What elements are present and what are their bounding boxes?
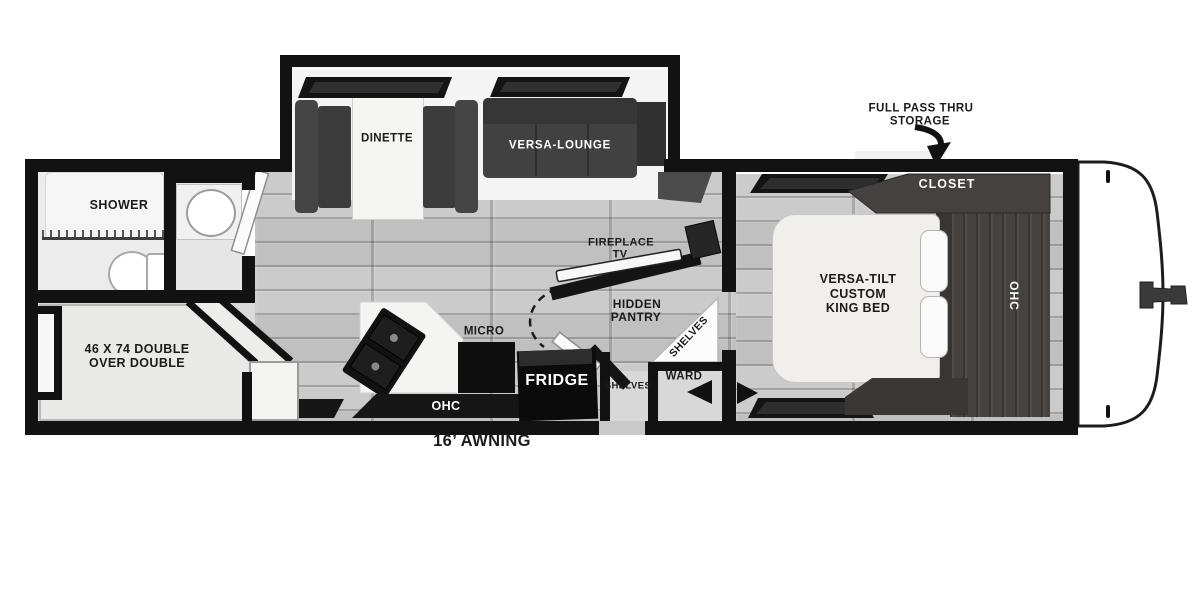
wall-bedroom-left-upper [722,172,736,292]
entry-door-threshold [597,421,647,435]
tv-panel [685,220,721,259]
wall-wardrobe-left [648,362,658,421]
king-bed-label-line3: KING BED [826,302,890,315]
marker-light [1106,170,1110,183]
hidden-pantry-label-line2: PANTRY [611,311,661,323]
slideout-window-glass [309,82,444,93]
wall-front [1063,159,1078,435]
fridge-top-face [519,349,592,367]
bunk-label-line2: OVER DOUBLE [89,357,185,370]
wall-bathroom-right-upper [242,159,255,190]
wall-alcove-top [176,172,242,183]
wall-shower-right [164,159,176,303]
wardrobe-rod-icon [687,380,712,404]
microwave-label: MICRO [464,326,504,338]
wall-bottom [25,421,1078,435]
bunk-label-line1: 46 X 74 DOUBLE [85,343,190,356]
versa-lounge-label: VERSA-LOUNGE [509,140,611,152]
closet-label: CLOSET [919,178,976,191]
dinette-label: DINETTE [361,133,413,145]
wall-top-front [664,159,1078,172]
slideout-wall-left [280,55,292,172]
fireplace-label-line1: FIREPLACE [588,238,654,249]
king-bed-label-line1: VERSA-TILT [820,273,897,286]
entry-step-platform [250,362,298,420]
pantry-overhead-cabinet [658,172,712,203]
rv-floorplan: SHOWER DINETTE VERSA-LOUNGE FIREPLACE TV… [0,0,1200,600]
shower-label: SHOWER [90,199,149,212]
fireplace-label-line2: TV [613,250,628,261]
slideout-wall-right [668,55,680,172]
fridge-label: FRIDGE [525,373,588,389]
bedroom-ohc-label: OHC [1008,281,1020,311]
pass-thru-storage-label-line2: STORAGE [890,116,950,128]
entry-shelves-label: SHELVES [605,381,651,391]
bunk-window-glass [36,314,54,392]
wall-bedroom-left-lower [722,350,736,421]
king-bed-label-line2: CUSTOM [830,288,886,301]
bedroom-corner-wedge [737,382,758,404]
awning-label: 16’ AWNING [433,433,531,450]
wall-post [242,372,252,421]
wardrobe-label: WARD [666,371,703,383]
marker-light [1106,405,1110,418]
wall-bathroom-right-lower [242,256,255,303]
microwave [458,342,515,393]
wall-bathroom-bottom [25,290,255,303]
bed-foot-cabinet [845,378,968,415]
pass-thru-storage-label-line1: FULL PASS THRU [869,103,974,115]
slideout-wall-top [280,55,680,67]
slideout-window-glass [500,82,622,92]
hidden-pantry-label-line1: HIDDEN [613,298,661,310]
kitchen-ohc-label: OHC [432,400,461,413]
corner-shelf-unit [652,298,718,362]
